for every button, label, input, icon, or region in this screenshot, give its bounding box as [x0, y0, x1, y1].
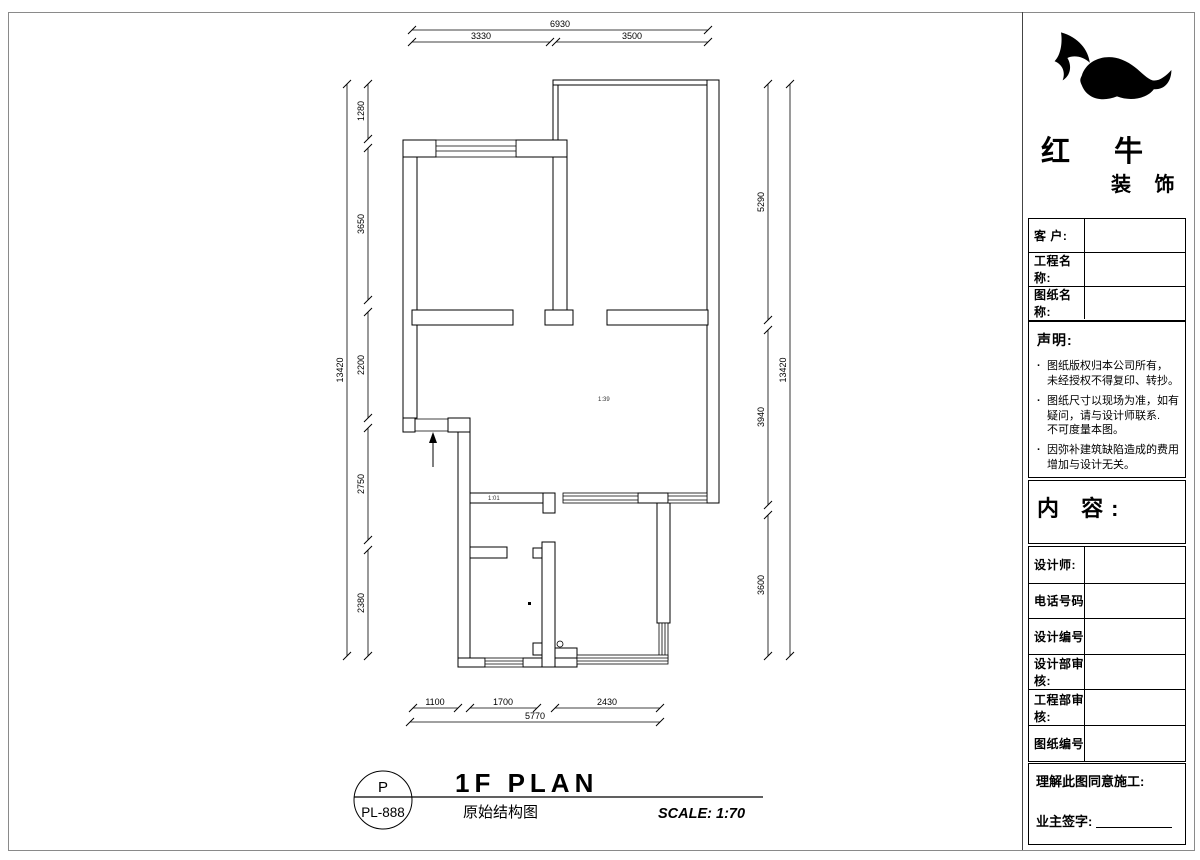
row-drawing-name: 图纸名称:: [1029, 286, 1185, 319]
dim-left-seg3: 2200: [356, 355, 366, 375]
approval-table: 设计师: 电话号码 设计编号 设计部审核: 工程部审核: 图纸编号: [1028, 546, 1186, 762]
dim-bottom-seg1: 1100: [425, 697, 444, 707]
project-name-label: 工程名称:: [1029, 253, 1085, 285]
drawing-code-number: PL-888: [361, 805, 405, 820]
statement-item: · 图纸尺寸以现场为准，如有 疑问，请与设计师联系. 不可度量本图。: [1037, 394, 1179, 439]
design-number-label: 设计编号: [1029, 619, 1085, 654]
floor-plan-walls: [403, 80, 719, 667]
company-name-suffix: 装 饰: [1111, 168, 1184, 197]
dim-bottom-seg3: 2430: [597, 697, 617, 707]
phone-label: 电话号码: [1029, 584, 1085, 619]
drawing-scale: SCALE: 1:70: [658, 806, 745, 822]
row-engineering-dept-review: 工程部审核:: [1029, 689, 1185, 725]
construction-consent-label: 理解此图同意施工:: [1036, 771, 1178, 790]
dim-right-seg2: 3940: [756, 407, 766, 427]
drawing-number-label: 图纸编号: [1029, 726, 1085, 761]
drawing-title: 1F PLAN: [455, 768, 598, 798]
row-design-dept-review: 设计部审核:: [1029, 654, 1185, 690]
dimension-top: [408, 26, 712, 46]
owner-signature-row: 业主签字:: [1036, 811, 1178, 830]
dim-left-seg2: 3650: [356, 214, 366, 234]
client-info-table: 客 户: 工程名称: 图纸名称:: [1028, 218, 1186, 321]
statement-heading: 声明:: [1037, 330, 1179, 350]
dim-left-seg4: 2750: [356, 474, 366, 494]
design-dept-review-label: 设计部审核:: [1029, 655, 1085, 690]
dim-right-seg1: 5290: [756, 192, 766, 212]
designer-label: 设计师:: [1029, 547, 1085, 583]
company-logo-area: 红 牛 装 饰: [1023, 12, 1195, 206]
drawing-title-group: P PL-888 1F PLAN 原始结构图 SCALE: 1:70: [354, 768, 763, 829]
row-drawing-number: 图纸编号: [1029, 725, 1185, 761]
signature-line: [1096, 812, 1172, 828]
company-name: 红 牛: [1041, 128, 1161, 170]
plan-note-a: 1:39: [598, 397, 610, 403]
statement-box: 声明: · 图纸版权归本公司所有， 未经授权不得复印、转抄。 · 图纸尺寸以现场…: [1028, 321, 1186, 478]
bull-logo-icon: [1037, 24, 1181, 124]
drawing-subtitle: 原始结构图: [463, 804, 538, 821]
row-design-number: 设计编号: [1029, 618, 1185, 654]
dim-bottom-seg2: 1700: [493, 697, 513, 707]
statement-text: 图纸尺寸以现场为准，如有 疑问，请与设计师联系. 不可度量本图。: [1047, 394, 1179, 439]
plan-note-b: 1:01: [488, 496, 500, 502]
client-label: 客 户:: [1029, 219, 1085, 252]
dim-top-seg1: 3330: [471, 31, 491, 41]
dim-right-total: 13420: [778, 357, 788, 382]
bullet-icon: ·: [1037, 394, 1047, 439]
floor-plan-drawing: 1:39 1:01 6930 3330 3500 13420 1280 3650…: [0, 0, 1022, 860]
dim-top-seg2: 3500: [622, 31, 642, 41]
row-client: 客 户:: [1029, 219, 1185, 252]
statement-text: 图纸版权归本公司所有， 未经授权不得复印、转抄。: [1047, 359, 1179, 389]
drawing-name-label: 图纸名称:: [1029, 287, 1085, 319]
dim-left-total: 13420: [335, 357, 345, 382]
bullet-icon: ·: [1037, 359, 1047, 389]
row-phone: 电话号码: [1029, 583, 1185, 619]
dim-top-total: 6930: [550, 19, 570, 29]
statement-item: · 因弥补建筑缺陷造成的费用 增加与设计无关。: [1037, 443, 1179, 473]
bullet-icon: ·: [1037, 443, 1047, 473]
content-label: 内 容:: [1037, 496, 1126, 521]
statement-item: · 图纸版权归本公司所有， 未经授权不得复印、转抄。: [1037, 359, 1179, 389]
dim-left-seg5: 2380: [356, 593, 366, 613]
entrance-arrow: [429, 432, 437, 467]
entrance-door: [415, 419, 448, 431]
engineering-dept-review-label: 工程部审核:: [1029, 690, 1085, 725]
dim-left-seg1: 1280: [356, 101, 366, 121]
content-box: 内 容:: [1028, 480, 1186, 544]
signature-box: 理解此图同意施工: 业主签字:: [1028, 763, 1186, 845]
dim-right-seg3: 3600: [756, 575, 766, 595]
drawing-code-letter: P: [378, 779, 388, 796]
row-designer: 设计师:: [1029, 547, 1185, 583]
title-block: 红 牛 装 饰 客 户: 工程名称: 图纸名称: 声明: · 图纸版权归本公司所…: [1023, 12, 1195, 850]
dim-bottom-total: 5770: [525, 711, 545, 721]
row-project-name: 工程名称:: [1029, 252, 1185, 285]
statement-text: 因弥补建筑缺陷造成的费用 增加与设计无关。: [1047, 443, 1179, 473]
owner-signature-label: 业主签字:: [1036, 811, 1092, 830]
